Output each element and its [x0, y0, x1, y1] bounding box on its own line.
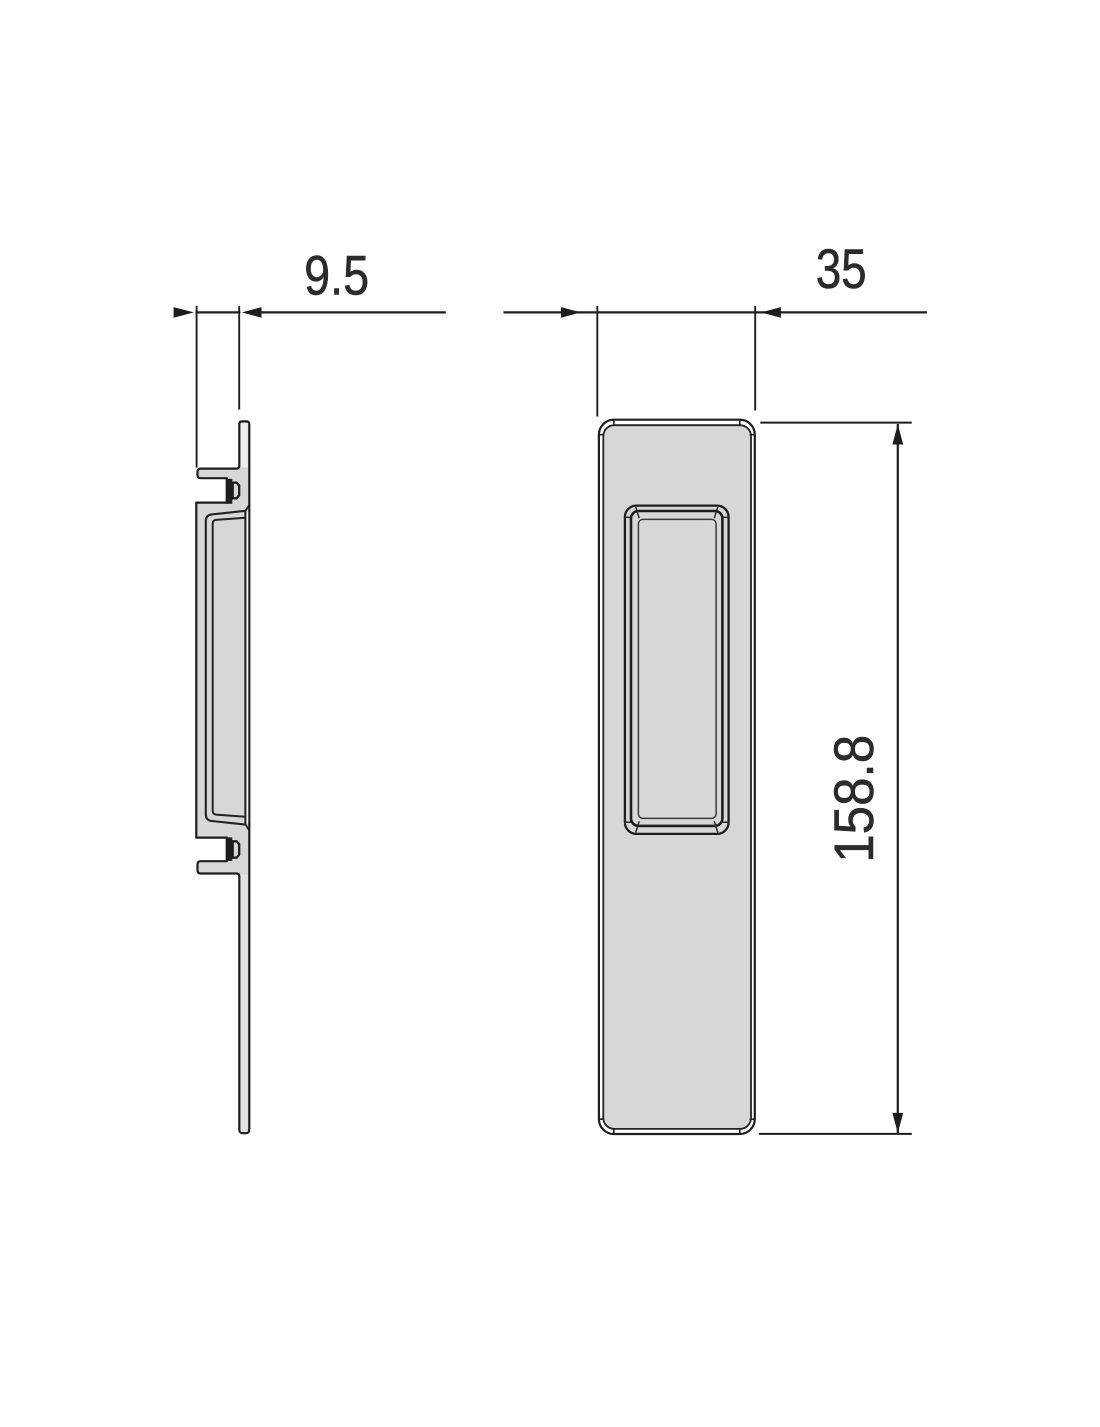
- svg-text:158.8: 158.8: [822, 735, 885, 863]
- svg-text:35: 35: [816, 237, 867, 300]
- svg-text:9.5: 9.5: [304, 244, 369, 307]
